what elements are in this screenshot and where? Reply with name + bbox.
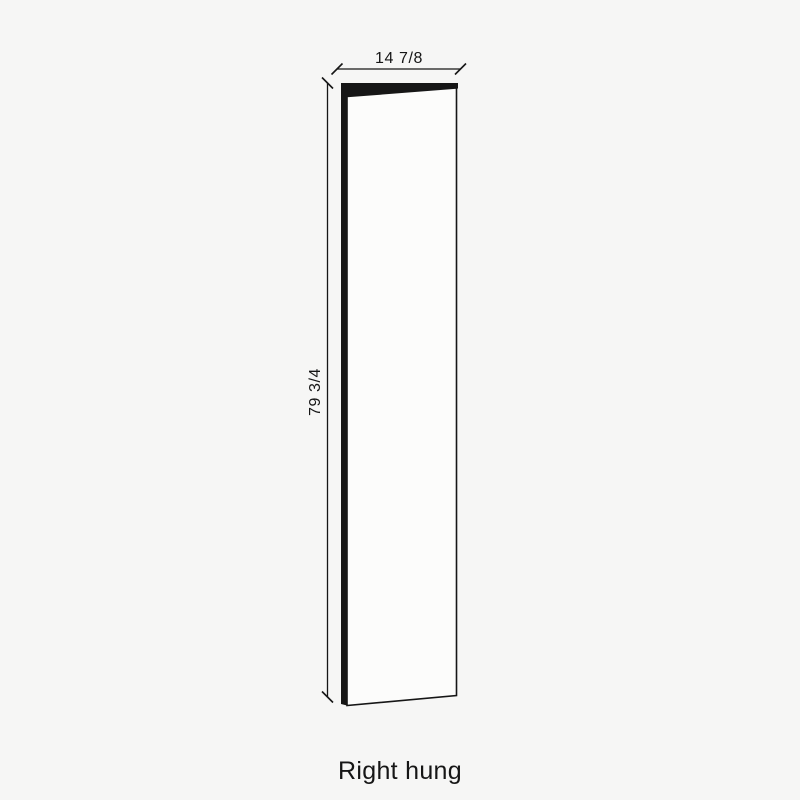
- height-dimension-label: 79 3/4: [306, 342, 326, 442]
- door-face: [347, 88, 457, 706]
- caption: Right hung: [200, 756, 600, 786]
- door-diagram: 14 7/8 79 3/4 Right hung: [0, 0, 800, 800]
- width-dimension-label: 14 7/8: [337, 49, 461, 69]
- door-drawing: [0, 0, 800, 800]
